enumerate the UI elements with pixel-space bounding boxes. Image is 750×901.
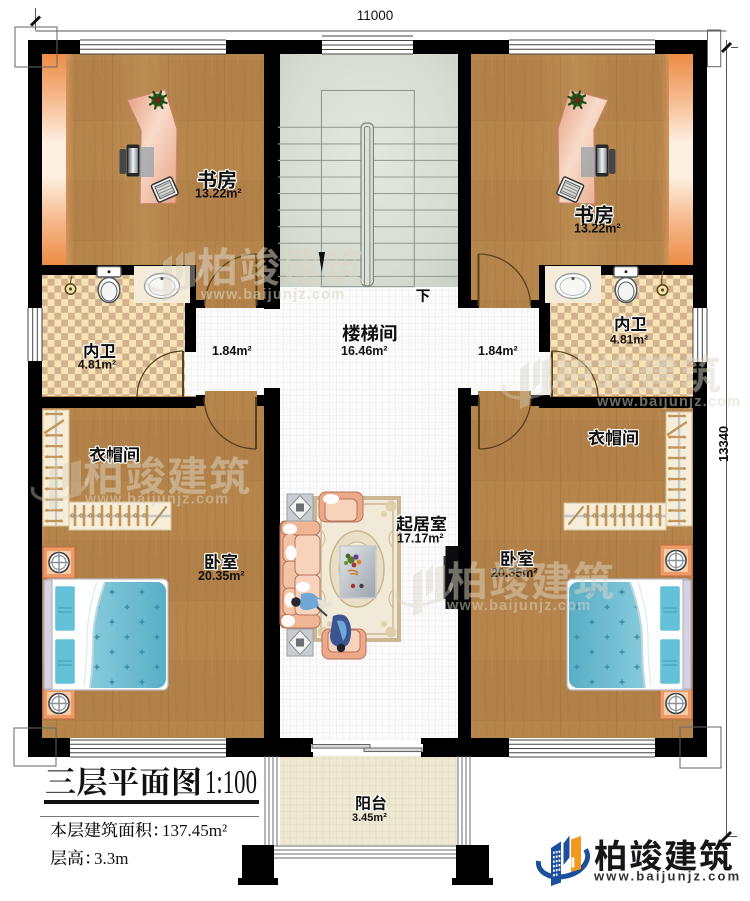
svg-text:1:100: 1:100 bbox=[205, 764, 257, 801]
svg-text:13340: 13340 bbox=[716, 426, 731, 462]
svg-text:20.35m²: 20.35m² bbox=[198, 569, 245, 583]
svg-text:13.22m²: 13.22m² bbox=[195, 187, 242, 201]
svg-text:13.22m²: 13.22m² bbox=[574, 222, 621, 236]
svg-text:1.84m²: 1.84m² bbox=[212, 344, 252, 358]
svg-text:137.45m²: 137.45m² bbox=[162, 821, 227, 840]
svg-text:16.46m²: 16.46m² bbox=[341, 344, 388, 358]
svg-text:4.81m²: 4.81m² bbox=[78, 358, 116, 372]
svg-text:www.baijunjz.com: www.baijunjz.com bbox=[200, 287, 345, 303]
svg-text:www.baijunjz.com: www.baijunjz.com bbox=[593, 869, 741, 884]
svg-text:3.3m: 3.3m bbox=[94, 849, 128, 868]
svg-text:1.84m²: 1.84m² bbox=[478, 344, 518, 358]
svg-text:www.baijunjz.com: www.baijunjz.com bbox=[596, 394, 741, 410]
svg-text:www.baijunjz.com: www.baijunjz.com bbox=[84, 492, 229, 508]
svg-text:4.81m²: 4.81m² bbox=[610, 333, 648, 347]
svg-text:www.baijunjz.com: www.baijunjz.com bbox=[446, 598, 591, 614]
svg-text:11000: 11000 bbox=[357, 8, 394, 23]
svg-text:3.45m²: 3.45m² bbox=[352, 812, 387, 824]
svg-text:17.17m²: 17.17m² bbox=[397, 532, 444, 546]
